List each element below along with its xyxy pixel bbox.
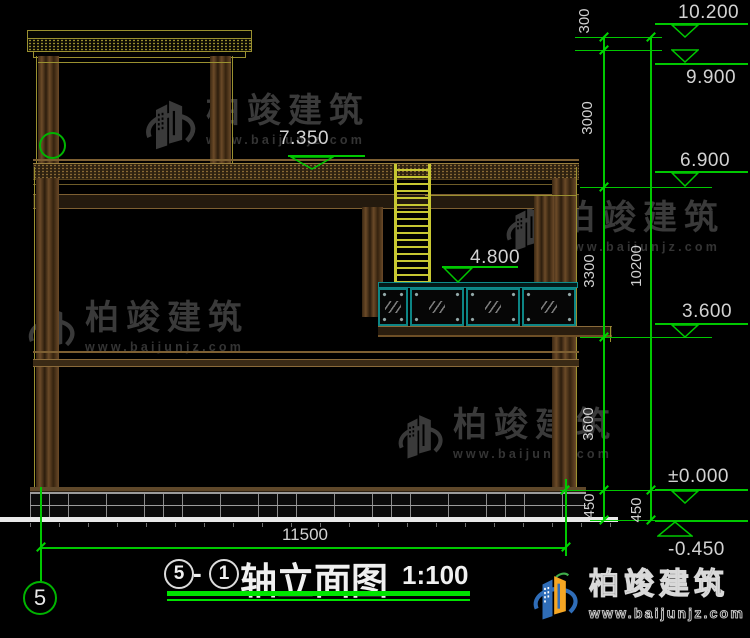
axis-bubble: 5 [23,581,57,615]
floor-beam-band [33,359,579,367]
penthouse-right-edge-line [232,56,233,168]
level-triangle-up [657,521,693,537]
glass-panel [466,288,520,326]
stone-base [30,492,586,518]
dim-label-3000: 3000 [580,95,596,141]
title-underline-thick [167,591,470,596]
level-triangle [671,324,699,338]
glass-symbol [485,301,501,313]
glass-panel [522,288,576,326]
dim-label-3300: 3300 [582,248,598,294]
penthouse-header-line [38,62,231,63]
dim-label-300: 300 [577,0,593,44]
level-line [655,63,748,65]
footer-logo-url: www.baijunjz.com [589,605,745,621]
level-text-9900: 9.900 [686,67,736,89]
title-dash: - [193,558,202,589]
recess-column [534,196,554,284]
level-text-zero: ±0.000 [668,466,729,488]
watermark-url: www.baijunjz.com [453,447,617,461]
level-triangle [671,49,699,63]
title-axis-circle-b: 1 [209,559,239,589]
glass-panel [410,288,464,326]
level-line [655,489,748,491]
dim-label-11500: 11500 [270,525,340,545]
title-axis-circle-a: 5 [164,559,194,589]
bottom-dimension-line [40,547,566,549]
dim-label-450: 450 [582,483,598,529]
level-text-minus450: -0.450 [668,539,725,561]
dim-label-10200: 10200 [629,243,645,289]
left-wall-edge-line [34,167,35,490]
level-text-10200: 10.200 [678,2,739,24]
drawing-title: 轴立面图 [240,551,388,605]
level-text-7350: 7.350 [279,128,329,150]
extension-line [40,487,42,582]
footer-logo-icon [530,570,580,629]
watermark-logo-icon [395,408,445,469]
watermark-brand: 柏竣建筑 [561,201,725,237]
glass-symbol [429,301,445,313]
footer-logo-brand: 柏竣建筑 [589,570,745,600]
left-main-column [36,178,59,488]
footer-logo: 柏竣建筑 www.baijunjz.com [530,570,745,629]
penthouse-left-edge-line [36,56,37,168]
level-line [655,323,748,325]
extension-line [575,50,662,51]
level-triangle [671,172,699,187]
glass-symbol [541,301,557,313]
level-triangle [671,490,699,504]
dim-label-450: 450 [629,487,645,533]
railing-glass-panels [378,288,578,326]
penthouse-roof-slab [27,38,252,52]
glass-symbol [385,301,401,313]
level-triangle [290,156,334,170]
balcony-slab-edge [378,326,612,337]
level-text-3600: 3.600 [682,301,732,323]
balcony-slab-drop-line [610,326,611,342]
cad-elevation-sheet: 柏竣建筑 www.baijunjz.com 柏竣建筑 www.baijunjz.… [0,0,750,638]
level-text-6900: 6.900 [680,150,730,172]
level-triangle [671,24,699,38]
ground-line [0,517,618,522]
level-triangle [443,267,473,283]
roof-beam-band [33,194,579,209]
roof-access-ladder [394,164,431,284]
watermark-logo-icon [142,94,198,159]
penthouse-right-column [210,56,231,168]
glass-panel [378,288,408,326]
title-underline-thin [167,599,470,601]
watermark: 柏竣建筑 www.baijunjz.com [142,94,370,159]
level-line [655,171,748,173]
dimension-chain-line [650,37,652,520]
level-line [655,23,748,25]
floor-band-line [33,351,579,353]
roof-beam-hairline [33,184,579,185]
dimension-chain-line [603,37,605,520]
column-axis-circle [39,132,66,159]
drawing-scale: 1:100 [402,560,469,591]
watermark-brand: 柏竣建筑 [85,301,249,337]
dim-label-3600: 3600 [581,401,597,447]
